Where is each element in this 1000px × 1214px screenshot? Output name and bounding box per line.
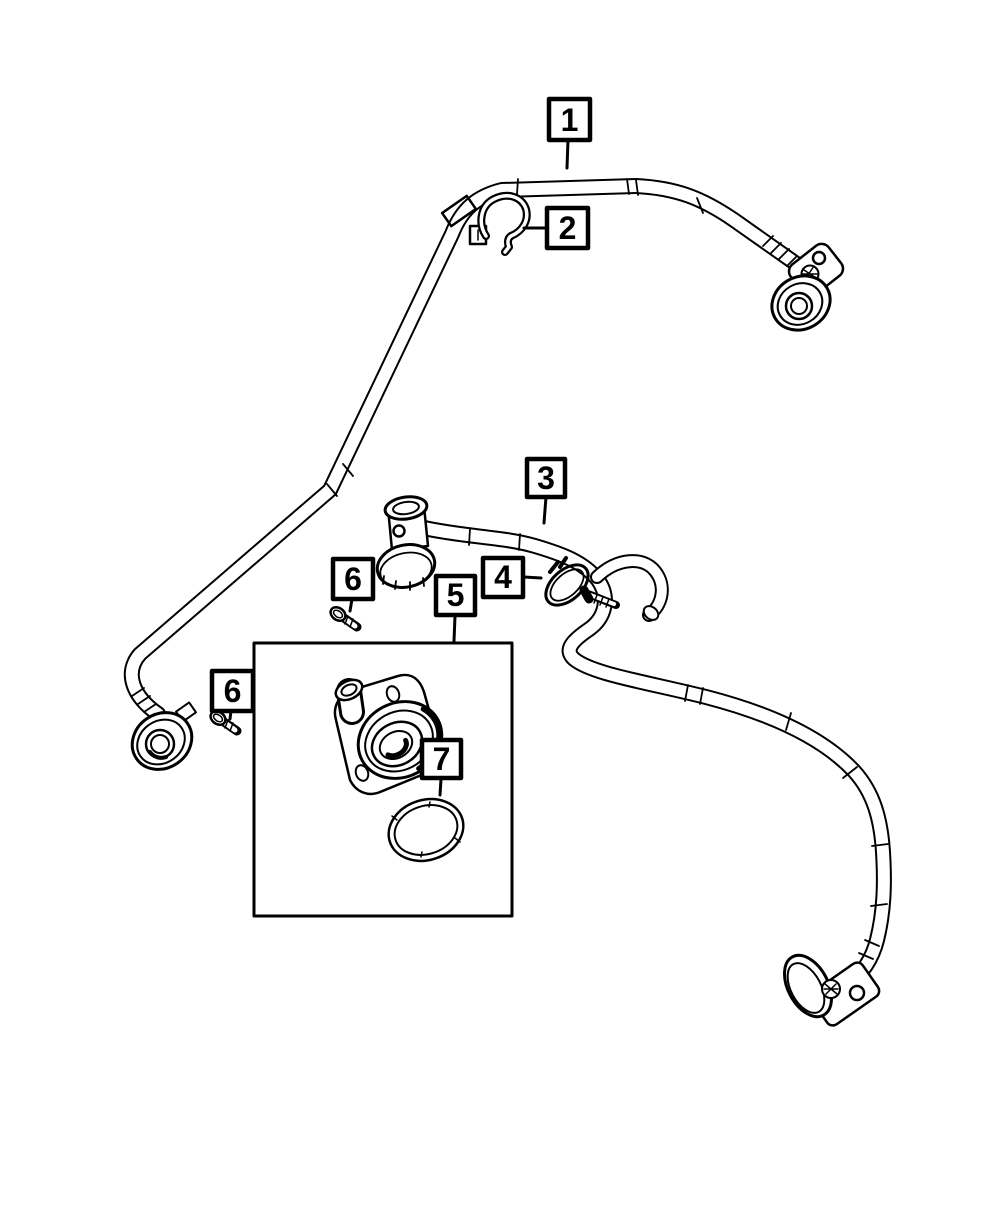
callout-3[interactable]: 3 xyxy=(527,459,565,523)
quick-connector-tube1-left xyxy=(121,701,203,781)
parts-diagram-page: 1 2 3 4 5 6 6 7 xyxy=(0,0,1000,1214)
callout-5[interactable]: 5 xyxy=(436,576,475,641)
leader-line-3 xyxy=(544,497,546,523)
leader-line-1 xyxy=(567,140,568,168)
callout-6-lower[interactable]: 6 xyxy=(212,671,253,719)
parts-diagram-canvas: 1 2 3 4 5 6 6 7 xyxy=(0,0,1000,1214)
callout-number-6-lower: 6 xyxy=(224,673,242,709)
leader-line-5 xyxy=(454,616,455,641)
callout-number-7: 7 xyxy=(433,741,451,777)
tube1-joint-marks xyxy=(132,179,797,720)
callout-1[interactable]: 1 xyxy=(549,99,590,168)
callout-number-1: 1 xyxy=(561,102,579,138)
callout-number-2: 2 xyxy=(559,210,577,246)
inset-detail-box xyxy=(254,643,512,916)
callout-2[interactable]: 2 xyxy=(524,208,588,248)
callout-6-upper[interactable]: 6 xyxy=(333,559,373,611)
callout-4[interactable]: 4 xyxy=(483,558,541,597)
leader-line-7 xyxy=(440,779,441,795)
callout-number-3: 3 xyxy=(537,460,555,496)
leader-line-4 xyxy=(524,577,541,578)
callout-number-6-upper: 6 xyxy=(344,561,362,597)
screw-6-upper xyxy=(328,604,357,627)
elbow-connector-tube3 xyxy=(373,494,438,592)
callout-number-5: 5 xyxy=(447,577,465,613)
callout-number-4: 4 xyxy=(494,559,512,595)
